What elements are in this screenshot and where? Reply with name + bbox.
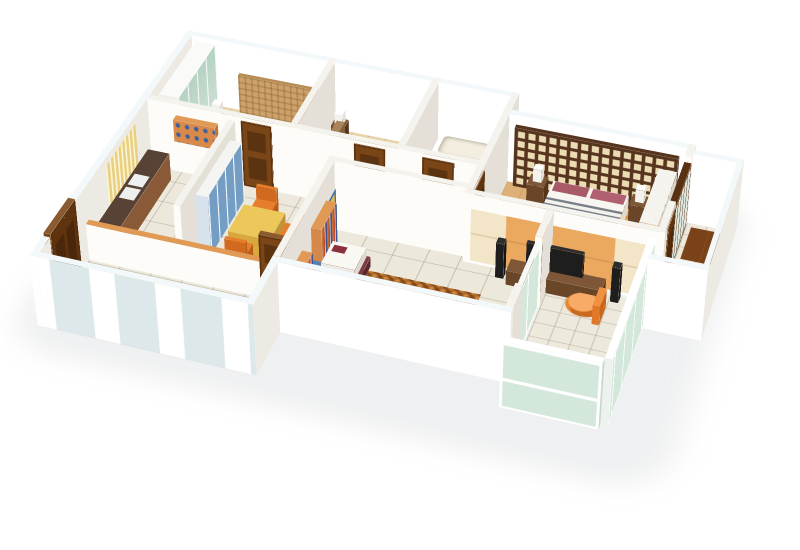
floorplan-canvas — [0, 0, 800, 550]
floorplan-3d-render — [33, 93, 754, 479]
utility-south-wall-front — [642, 258, 708, 341]
corridor-door-bed1-front — [241, 121, 274, 192]
